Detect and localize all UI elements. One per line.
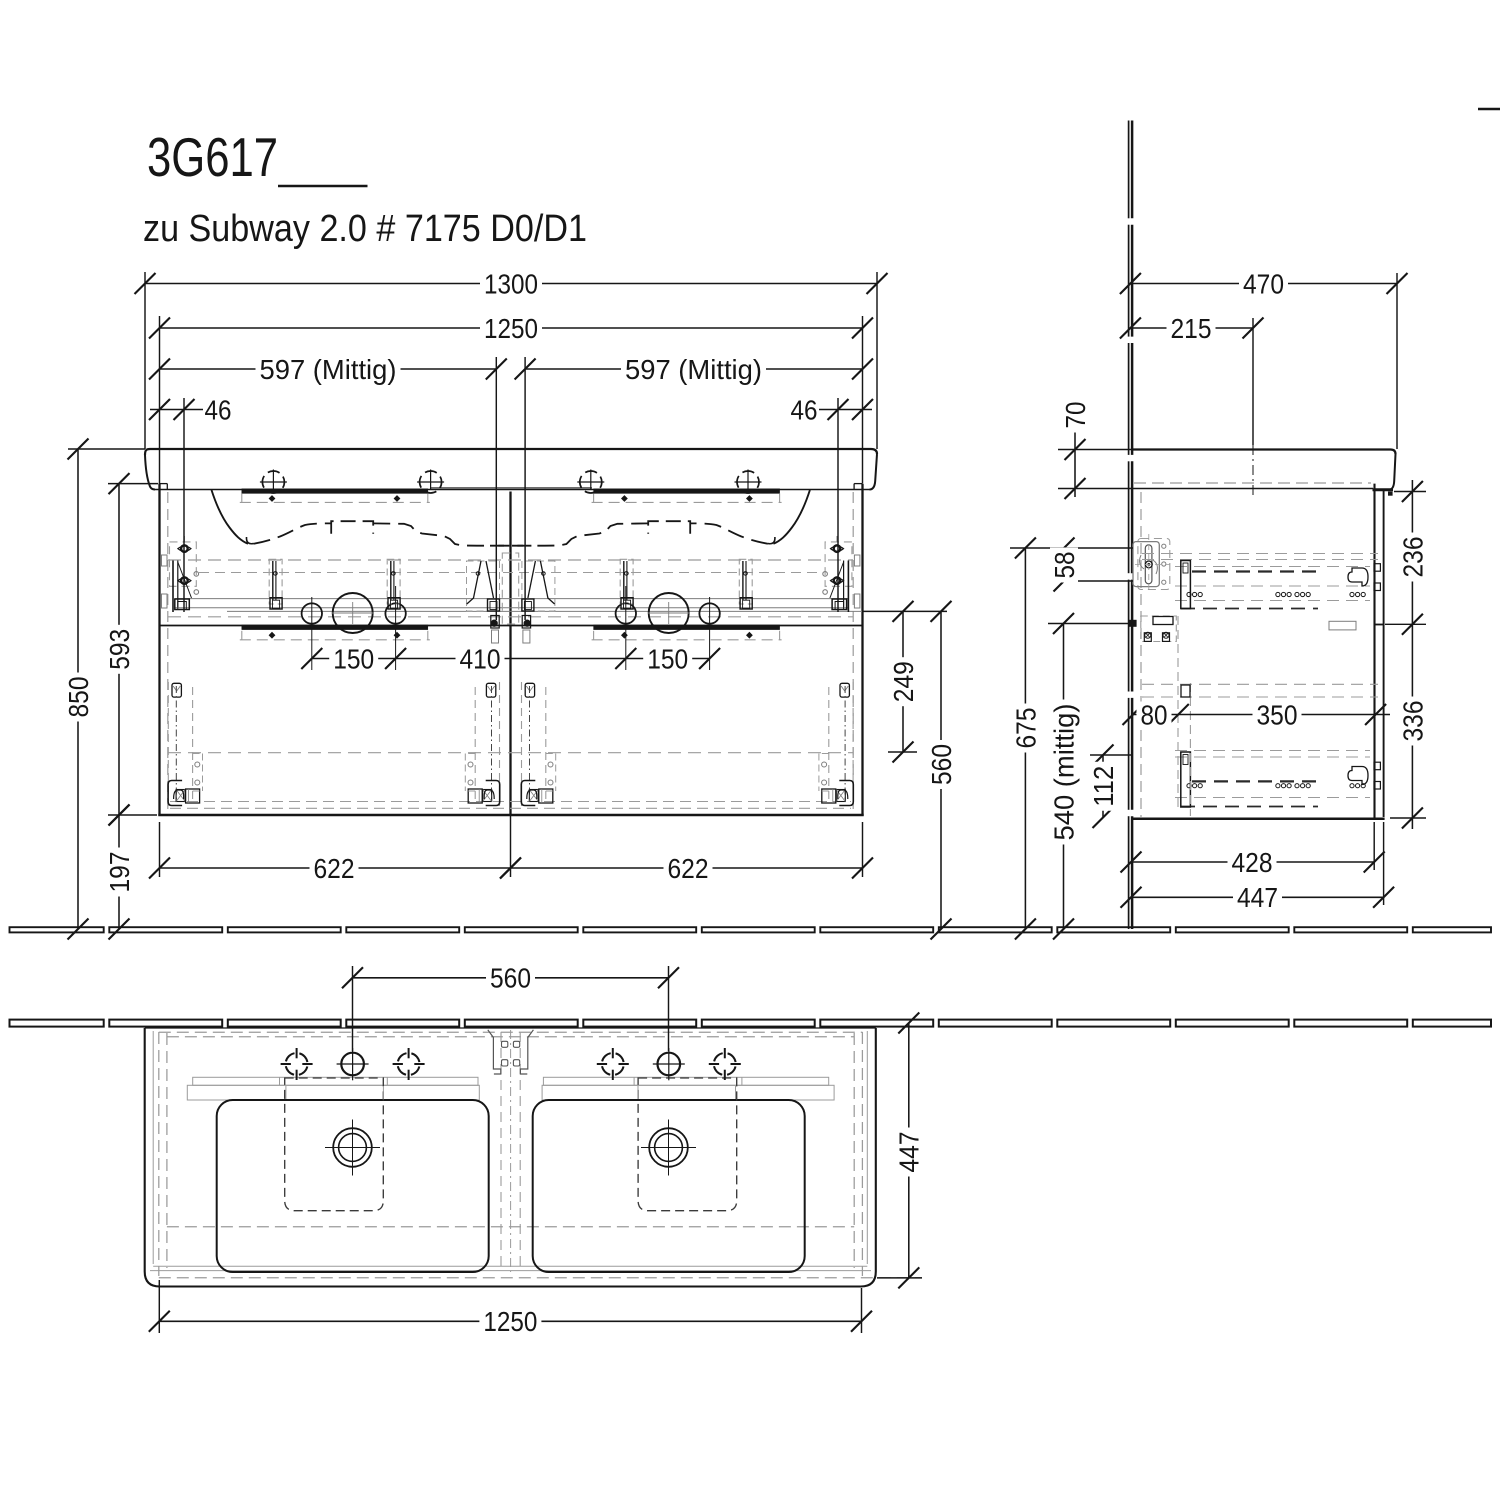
svg-text:46: 46: [205, 394, 232, 425]
svg-text:197: 197: [104, 852, 135, 893]
svg-text:80: 80: [1141, 699, 1168, 730]
svg-text:112: 112: [1088, 766, 1119, 807]
svg-text:70: 70: [1060, 402, 1091, 429]
svg-text:593: 593: [104, 629, 135, 670]
svg-text:46: 46: [791, 394, 818, 425]
svg-text:540 (mittig): 540 (mittig): [1048, 704, 1079, 841]
svg-text:336: 336: [1397, 701, 1428, 742]
svg-text:1300: 1300: [484, 268, 538, 299]
svg-text:428: 428: [1232, 847, 1273, 878]
svg-text:58: 58: [1049, 552, 1080, 579]
svg-text:597 (Mittig): 597 (Mittig): [260, 354, 397, 385]
svg-text:675: 675: [1010, 708, 1041, 749]
svg-text:447: 447: [1237, 882, 1278, 913]
svg-text:470: 470: [1243, 268, 1284, 299]
svg-text:215: 215: [1171, 313, 1212, 344]
svg-text:560: 560: [926, 744, 957, 785]
svg-text:560: 560: [490, 963, 531, 994]
svg-text:410: 410: [460, 643, 501, 674]
svg-text:236: 236: [1397, 537, 1428, 578]
svg-text:249: 249: [888, 661, 919, 702]
svg-text:622: 622: [314, 853, 355, 884]
svg-text:zu Subway 2.0 # 7175 D0/D1: zu Subway 2.0 # 7175 D0/D1: [143, 208, 587, 250]
svg-text:597 (Mittig): 597 (Mittig): [625, 354, 762, 385]
svg-text:150: 150: [647, 643, 688, 674]
svg-text:622: 622: [668, 853, 709, 884]
svg-text:3G617: 3G617: [147, 126, 278, 188]
svg-text:150: 150: [333, 643, 374, 674]
svg-text:850: 850: [63, 677, 94, 718]
svg-text:350: 350: [1257, 699, 1298, 730]
svg-text:447: 447: [894, 1132, 925, 1173]
svg-text:1250: 1250: [483, 1306, 537, 1337]
svg-text:1250: 1250: [484, 313, 538, 344]
